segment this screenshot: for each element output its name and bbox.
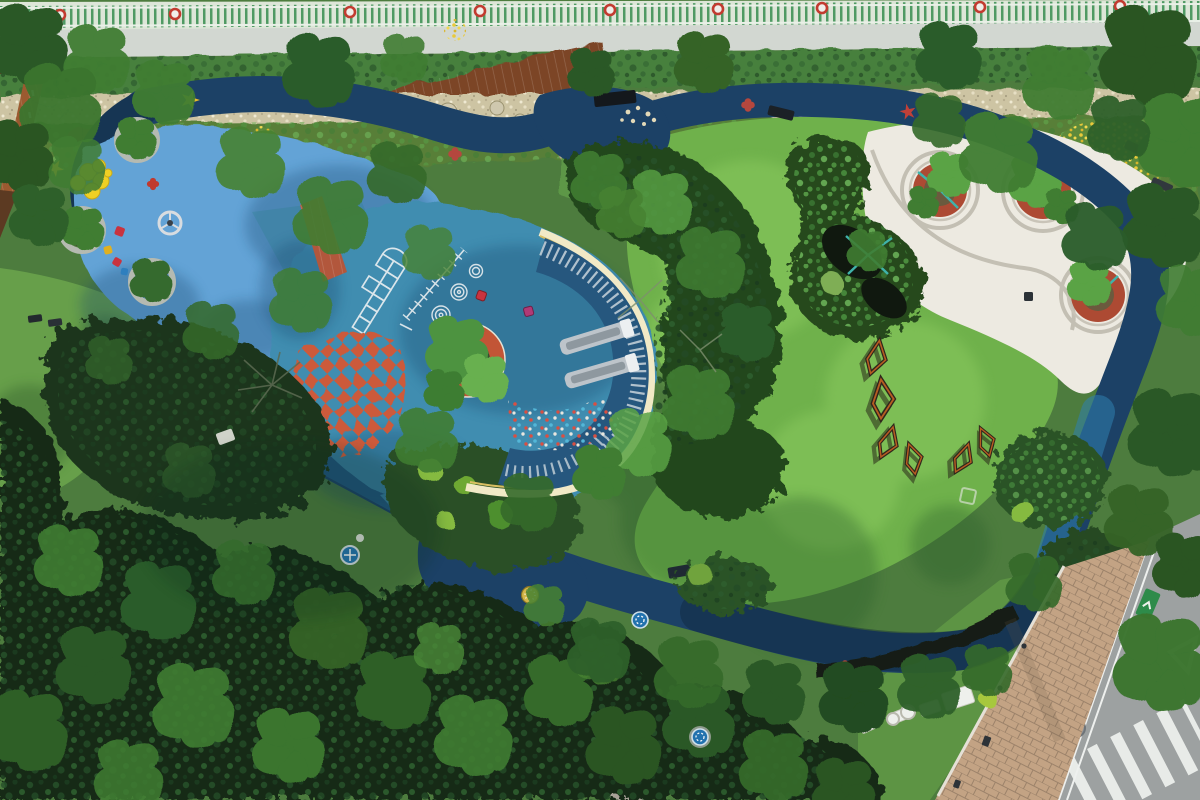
tree-planter-round	[115, 117, 159, 160]
corner-shade	[140, 440, 440, 620]
park-illustration: Aerial view of a community park	[0, 0, 1200, 800]
aerial-park-photo: Aerial view of a community park	[0, 0, 1200, 800]
tree-planter-round	[129, 258, 175, 303]
blue-medallion-clearing	[689, 726, 711, 748]
blue-medallion	[632, 612, 648, 628]
shrub-island-south	[677, 557, 773, 613]
litter-bin	[1024, 292, 1033, 301]
mowed-bush	[822, 273, 844, 295]
